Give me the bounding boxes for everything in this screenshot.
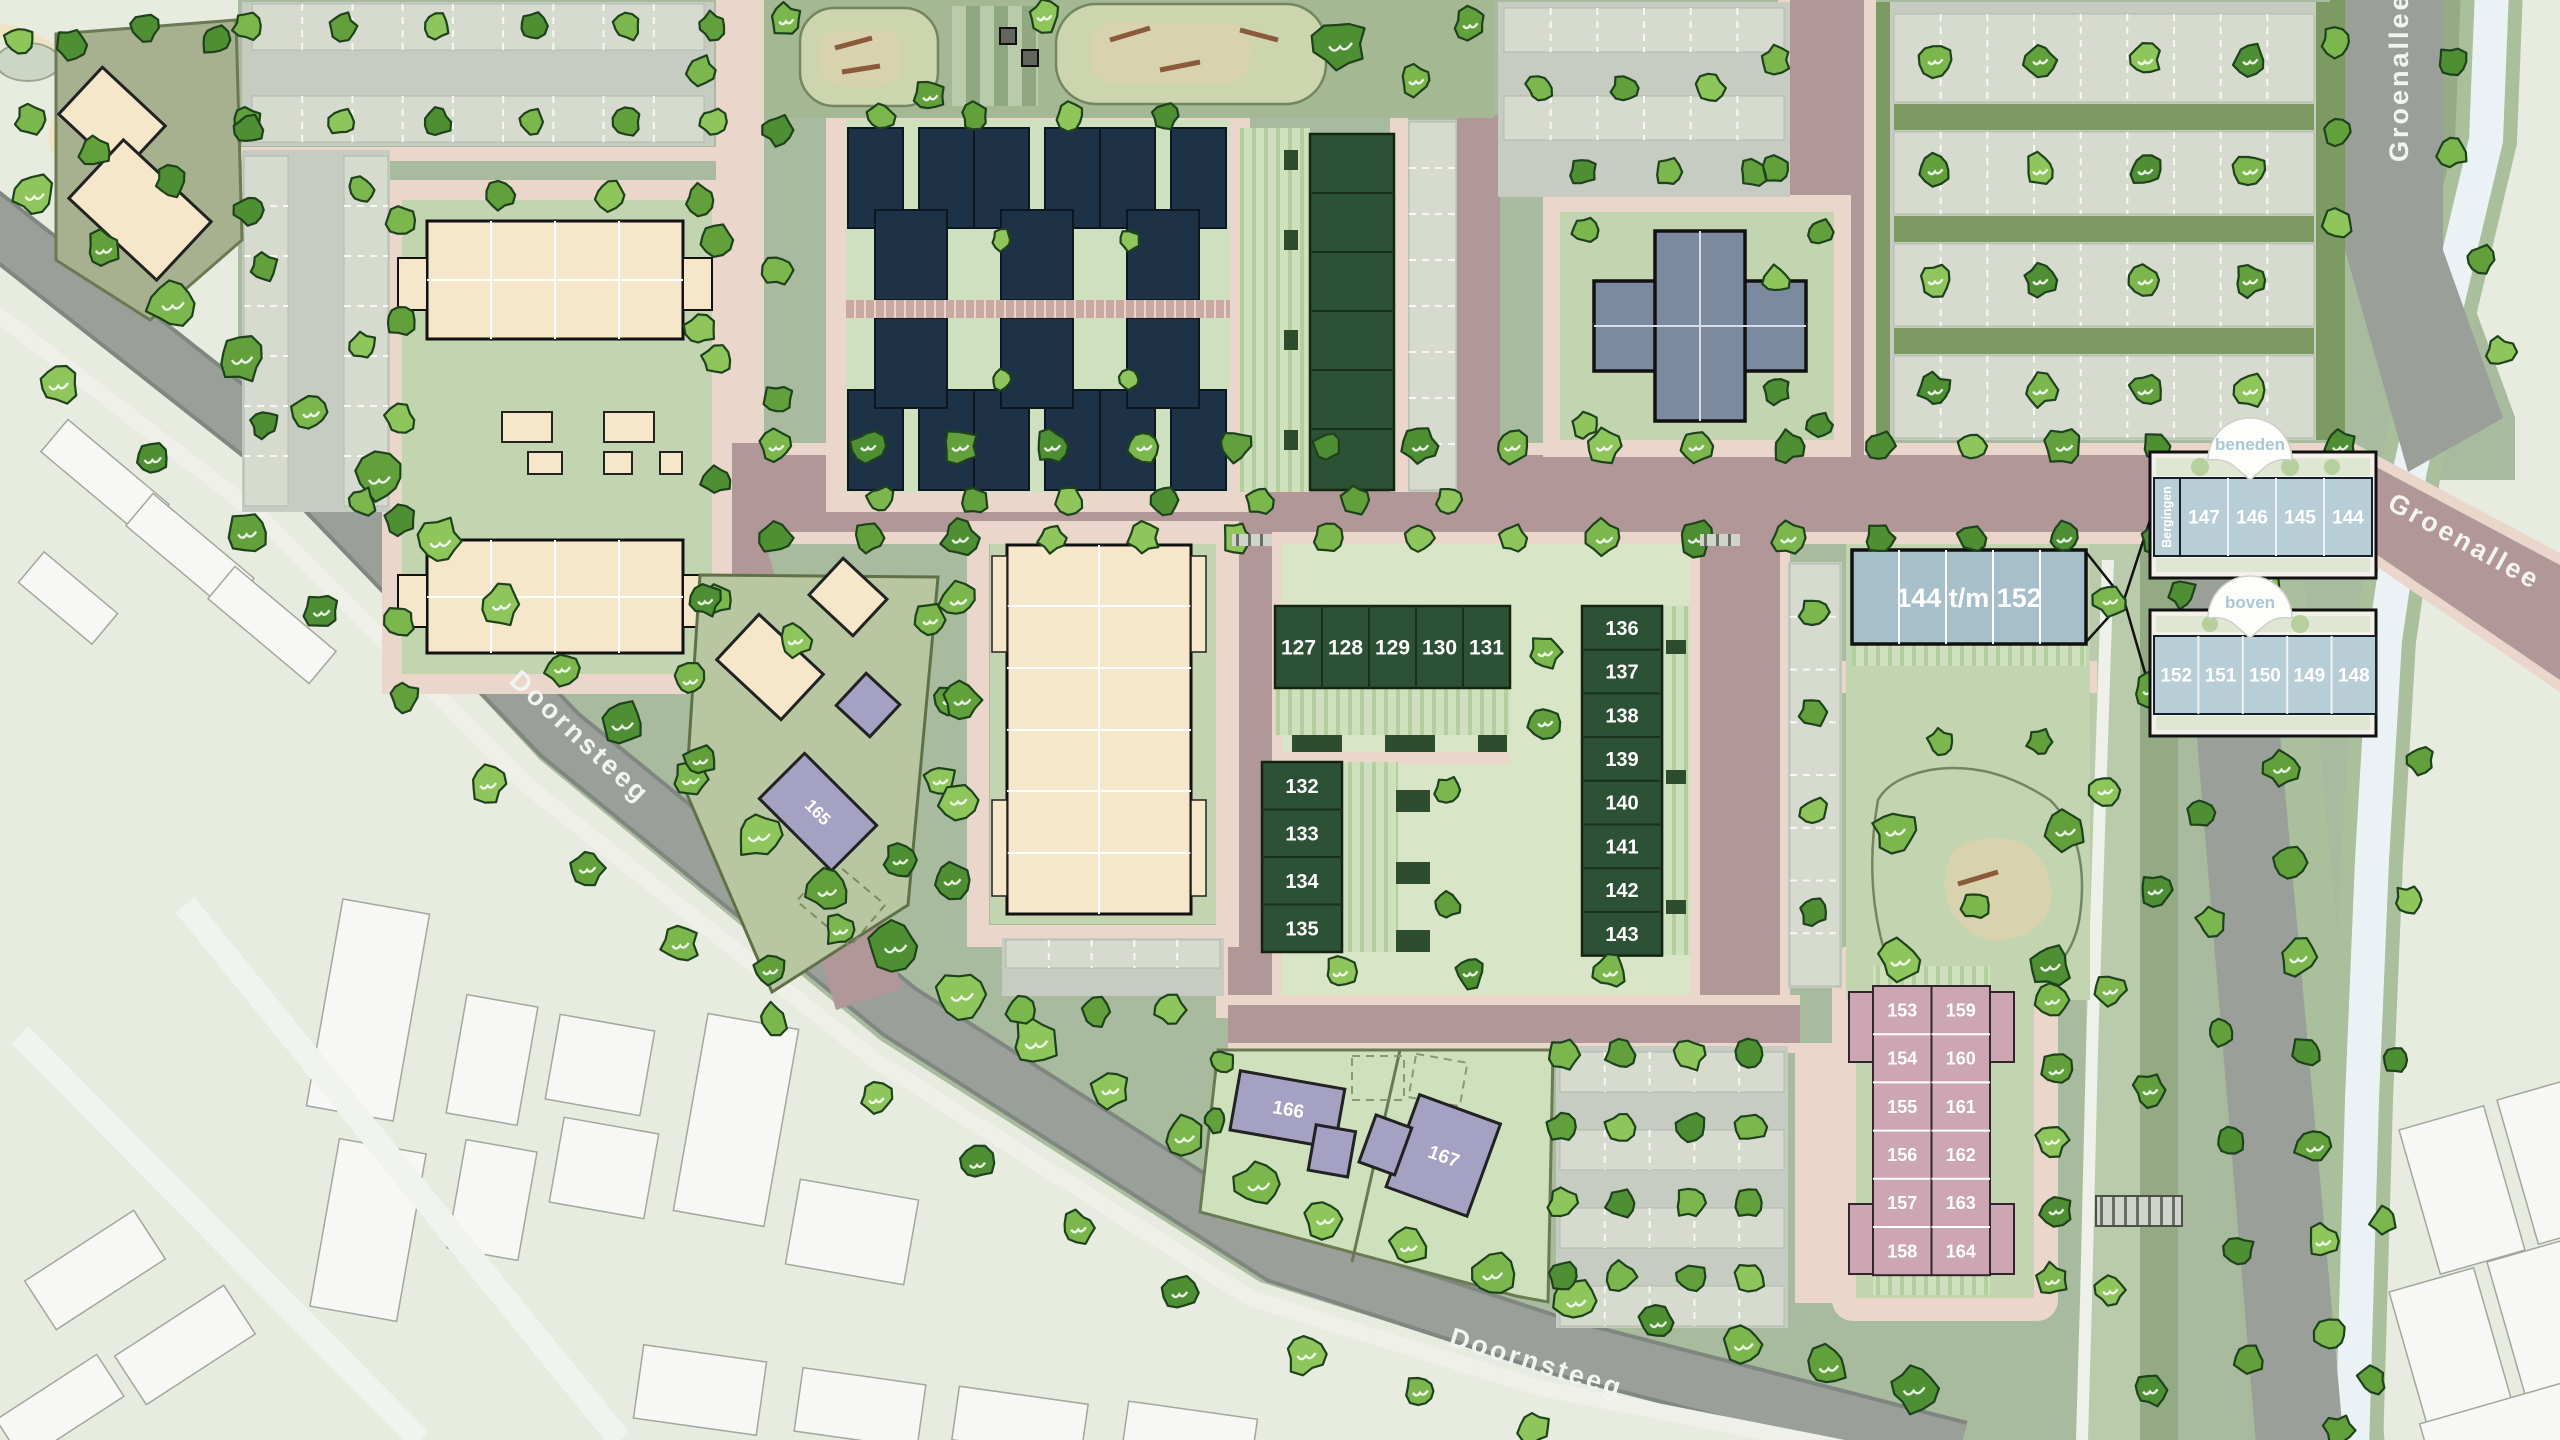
plot-number: 140	[1605, 793, 1638, 815]
plot-number: 162	[1946, 1145, 1976, 1165]
plot-number: 138	[1605, 705, 1638, 727]
plot-number: 127	[1281, 636, 1316, 659]
plot-number: 159	[1946, 1000, 1976, 1020]
plot-number: 155	[1887, 1097, 1917, 1117]
tree-icon	[2396, 887, 2422, 914]
tree-icon	[914, 82, 944, 108]
tree-icon	[962, 488, 987, 512]
tree-icon	[1921, 265, 1949, 297]
plot-number: 161	[1946, 1097, 1976, 1117]
tree-icon	[1570, 160, 1595, 183]
plot-number: 152	[2160, 666, 2192, 687]
tree-icon	[1406, 1378, 1433, 1405]
plot-number: 130	[1422, 636, 1457, 659]
plot-number: 128	[1328, 636, 1363, 659]
beneden-label: beneden	[2215, 435, 2285, 454]
tree-icon	[1961, 895, 1989, 918]
plot-number: 144	[2332, 508, 2364, 529]
plot-number: 139	[1605, 749, 1638, 771]
tree-icon	[137, 443, 166, 473]
callout-boxes: Bergingen 147146145144152151150149148 be…	[2150, 418, 2376, 736]
site-plan-map: 1271281291301311321331341351361371381391…	[0, 0, 2560, 1440]
tree-icon	[229, 514, 266, 551]
tree-icon	[384, 608, 414, 635]
tree-icon	[2384, 1048, 2407, 1072]
access-lane	[1457, 115, 1500, 455]
plot-number: 132	[1285, 776, 1318, 798]
tree-icon	[1736, 1189, 1762, 1216]
plot-number: 158	[1887, 1241, 1917, 1261]
bridge	[2096, 1196, 2182, 1226]
plot-number: 134	[1285, 871, 1319, 893]
plot-number: 163	[1946, 1193, 1976, 1213]
parking-stalls	[1006, 940, 1220, 968]
bergingen-label: Bergingen	[2160, 486, 2174, 548]
plot-number: 148	[2338, 666, 2370, 687]
plot-number: 145	[2284, 508, 2316, 529]
plot-number: 141	[1605, 836, 1638, 858]
plot-number: 137	[1605, 662, 1638, 684]
tree-icon	[2187, 801, 2215, 826]
tree-icon	[962, 101, 986, 129]
tree-icon	[1055, 488, 1082, 515]
tree-icon	[1735, 1115, 1768, 1139]
street-label-groenallee-north: Groenallee	[2384, 0, 2414, 162]
tree-icon	[1328, 956, 1357, 985]
existing-house	[545, 1014, 654, 1115]
tree-icon	[2314, 1320, 2345, 1349]
tree-icon	[2210, 1019, 2232, 1047]
plot-number: 142	[1605, 880, 1638, 902]
plot-number: 146	[2236, 508, 2268, 529]
tree-icon	[425, 13, 448, 39]
existing-house	[549, 1117, 658, 1218]
tree-icon	[762, 258, 794, 285]
plot-number: 153	[1887, 1000, 1917, 1020]
boven-label: boven	[2225, 593, 2275, 612]
plot-number: 129	[1375, 636, 1410, 659]
plot-number: 156	[1887, 1145, 1917, 1165]
plot-number: 164	[1946, 1241, 1976, 1261]
tree-icon	[2044, 429, 2079, 463]
tree-icon	[1057, 101, 1082, 131]
plot-number: 143	[1605, 924, 1638, 946]
tree-icon	[1735, 1265, 1764, 1292]
tree-icon	[2440, 49, 2467, 75]
plot-number: 147	[2188, 508, 2220, 529]
apartment-range-label[interactable]: 144 t/m 152	[1896, 583, 2042, 613]
tree-icon	[2218, 1127, 2243, 1154]
plot-number: 150	[2249, 666, 2281, 687]
tree-icon	[1572, 218, 1599, 242]
plot-number: 131	[1469, 636, 1504, 659]
tree-icon	[1434, 777, 1460, 803]
tree-icon	[1549, 1262, 1577, 1289]
plot-number: 160	[1946, 1049, 1976, 1069]
courtyard-path	[846, 300, 1230, 318]
plot-number: 133	[1285, 823, 1318, 845]
tree-icon	[388, 307, 415, 335]
plot-number: 136	[1605, 618, 1638, 640]
tree-icon	[2041, 1054, 2072, 1082]
tree-icon	[1736, 1039, 1763, 1068]
tree-icon	[386, 206, 415, 234]
tree-icon	[613, 107, 640, 135]
plot-number: 154	[1887, 1049, 1917, 1069]
villa-166-wing	[1308, 1125, 1355, 1177]
plot-number: 135	[1285, 918, 1318, 940]
tree-icon	[1958, 435, 1987, 458]
tree-icon	[1799, 700, 1827, 726]
tree-icon	[1314, 524, 1343, 551]
plot-number: 151	[2205, 666, 2237, 687]
tree-icon	[764, 387, 793, 411]
tree-icon	[1162, 1276, 1199, 1307]
tree-icon	[304, 596, 337, 626]
plot-number: 157	[1887, 1193, 1917, 1213]
plot-number: 149	[2294, 666, 2326, 687]
